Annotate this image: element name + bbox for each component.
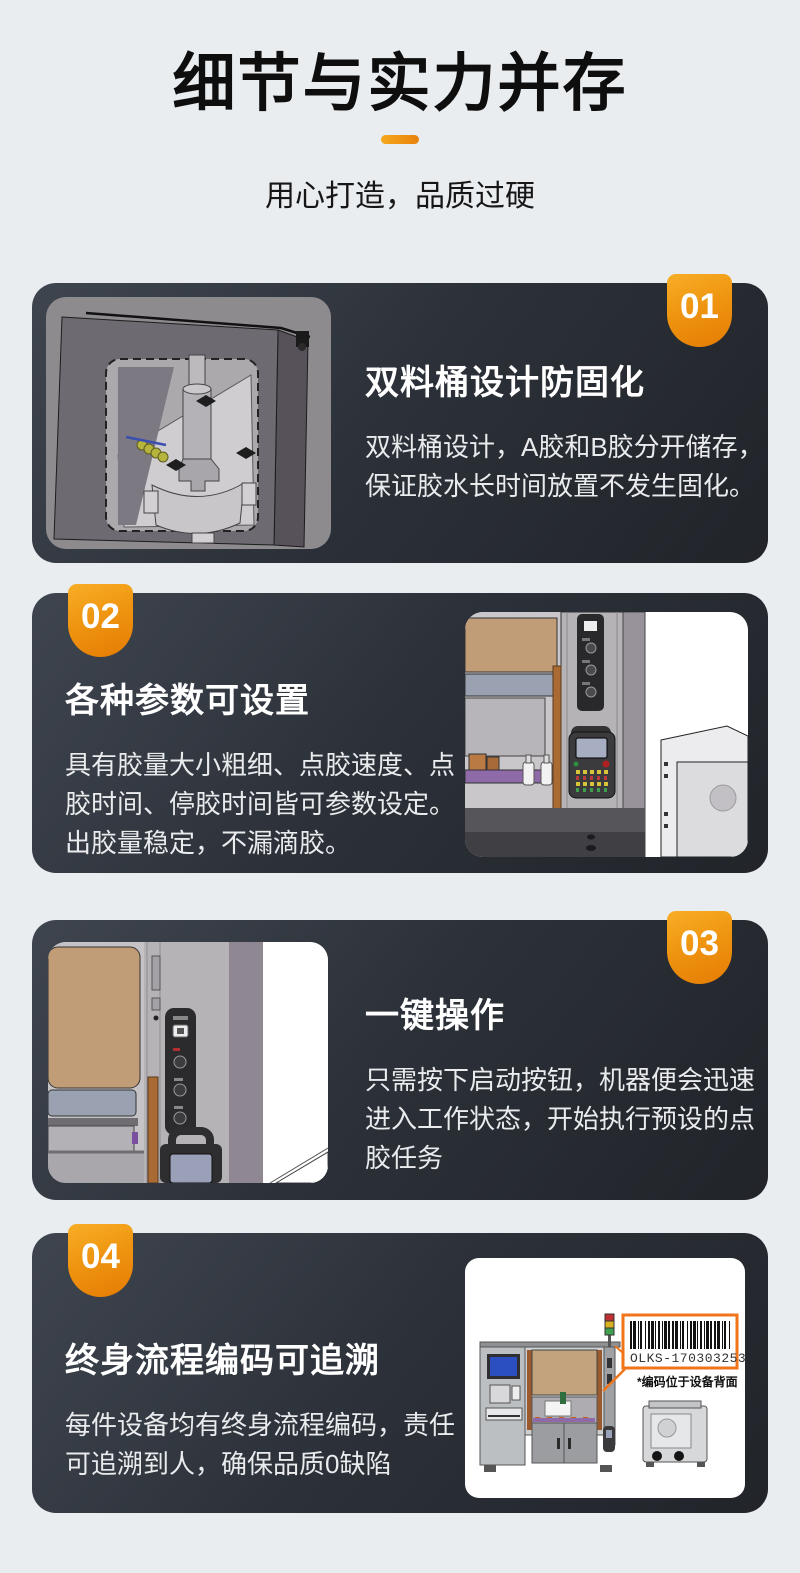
page-header: 细节与实力并存 用心打造，品质过硬	[0, 0, 800, 215]
feature-card-04: 04 终身流程编码可追溯 每件设备均有终身流程编码，责任可追溯到人，确保品质0缺…	[32, 1233, 768, 1513]
card-02-text: 各种参数可设置 具有胶量大小粗细、点胶速度、点胶时间、停胶时间皆可参数设定。出胶…	[65, 673, 479, 863]
dual-barrel-illustration	[46, 297, 331, 549]
feature-card-03: 03	[32, 920, 768, 1200]
dual-barrel-cad-image	[46, 297, 331, 549]
traceability-illustration: OLKS-1703032539 *编码位于设备背面	[465, 1258, 745, 1498]
step-number: 03	[680, 924, 719, 964]
teach-pendant-illustration	[465, 612, 748, 857]
card-body: 双料桶设计，A胶和B胶分开储存，保证胶水长时间放置不发生固化。	[365, 428, 769, 506]
step-badge-04: 04	[68, 1224, 133, 1297]
step-number: 04	[81, 1237, 120, 1277]
feature-card-list: 01	[0, 283, 800, 1513]
card-04-text: 终身流程编码可追溯 每件设备均有终身流程编码，责任可追溯到人，确保品质0缺陷	[65, 1333, 479, 1484]
traceability-image: OLKS-1703032539 *编码位于设备背面	[465, 1258, 745, 1498]
card-body: 每件设备均有终身流程编码，责任可追溯到人，确保品质0缺陷	[65, 1406, 479, 1484]
promo-page: 细节与实力并存 用心打造，品质过硬 01	[0, 0, 800, 1573]
step-badge-03: 03	[667, 911, 732, 984]
step-badge-02: 02	[68, 584, 133, 657]
page-subtitle: 用心打造，品质过硬	[0, 171, 800, 215]
title-divider	[381, 135, 419, 144]
teach-pendant-image	[465, 612, 748, 857]
step-number: 02	[81, 597, 120, 637]
barcode-number: OLKS-1703032539	[630, 1351, 745, 1366]
start-button-panel-illustration	[48, 942, 328, 1183]
card-03-text: 一键操作 只需按下启动按钮，机器便会迅速进入工作状态，开始执行预设的点胶任务	[365, 988, 773, 1178]
page-title: 细节与实力并存	[0, 48, 800, 120]
side-cabinet-icon	[643, 1401, 707, 1467]
card-title: 一键操作	[365, 988, 773, 1037]
card-01-text: 双料桶设计防固化 双料桶设计，A胶和B胶分开储存，保证胶水长时间放置不发生固化。	[365, 355, 769, 506]
start-button-panel-image	[48, 942, 328, 1183]
step-badge-01: 01	[667, 274, 732, 347]
card-title: 各种参数可设置	[65, 673, 479, 722]
barcode-location-note: *编码位于设备背面	[637, 1374, 738, 1389]
card-body: 具有胶量大小粗细、点胶速度、点胶时间、停胶时间皆可参数设定。出胶量稳定，不漏滴胶…	[65, 746, 479, 863]
feature-card-02: 02 各种参数可设置 具有胶量大小粗细、点胶速度、点胶时间、停胶时间皆可参数设定…	[32, 593, 768, 873]
feature-card-01: 01	[32, 283, 768, 563]
card-title: 终身流程编码可追溯	[65, 1333, 479, 1382]
card-title: 双料桶设计防固化	[365, 355, 769, 404]
card-body: 只需按下启动按钮，机器便会迅速进入工作状态，开始执行预设的点胶任务	[365, 1061, 773, 1178]
step-number: 01	[680, 287, 719, 327]
